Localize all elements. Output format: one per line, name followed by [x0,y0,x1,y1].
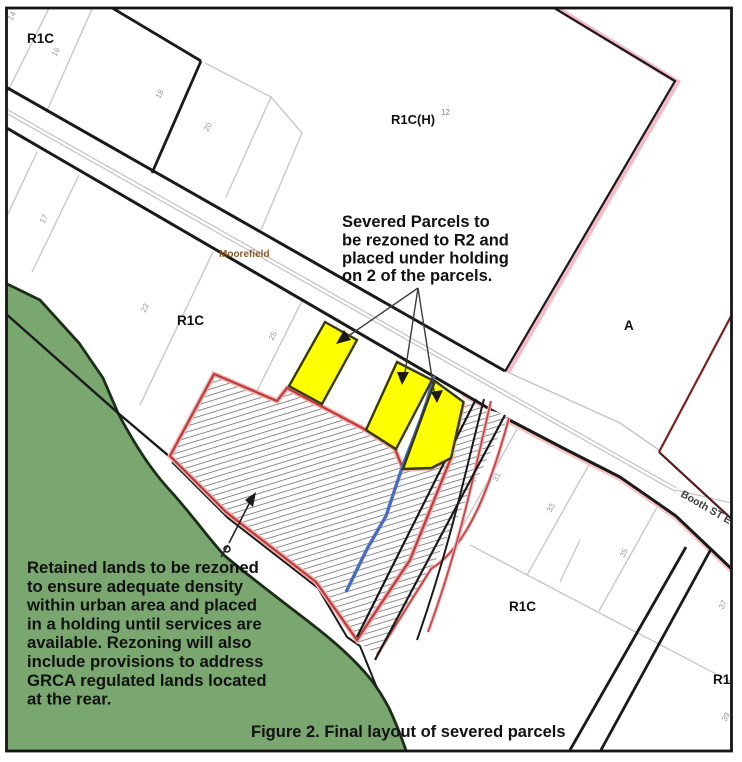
svg-text:in a holding until services ar: in a holding until services are [27,614,262,633]
svg-text:Severed Parcels to: Severed Parcels to [342,213,490,231]
svg-text:on 2 of the parcels.: on 2 of the parcels. [342,267,492,285]
svg-text:GRCA regulated lands located: GRCA regulated lands located [27,671,267,690]
svg-text:placed under holding: placed under holding [342,250,509,268]
svg-text:Moorefield: Moorefield [219,249,270,260]
svg-text:available. Rezoning will also: available. Rezoning will also [27,633,251,652]
svg-text:A: A [624,318,634,333]
svg-text:be rezoned to R2 and: be rezoned to R2 and [342,232,509,250]
svg-text:R1C: R1C [509,599,536,614]
svg-text:include provisions to address: include provisions to address [27,652,263,671]
svg-text:Retained lands to be rezoned: Retained lands to be rezoned [27,558,259,577]
svg-text:Figure 2. Final layout of seve: Figure 2. Final layout of severed parcel… [251,723,566,741]
svg-text:to ensure adequate density: to ensure adequate density [27,577,244,596]
svg-text:R1C: R1C [27,31,54,46]
svg-text:within urban area and placed: within urban area and placed [26,596,257,615]
svg-text:12: 12 [441,108,450,117]
svg-text:at the rear.: at the rear. [27,690,111,709]
svg-text:R1C(H): R1C(H) [391,112,435,127]
svg-text:R1C: R1C [177,313,204,328]
